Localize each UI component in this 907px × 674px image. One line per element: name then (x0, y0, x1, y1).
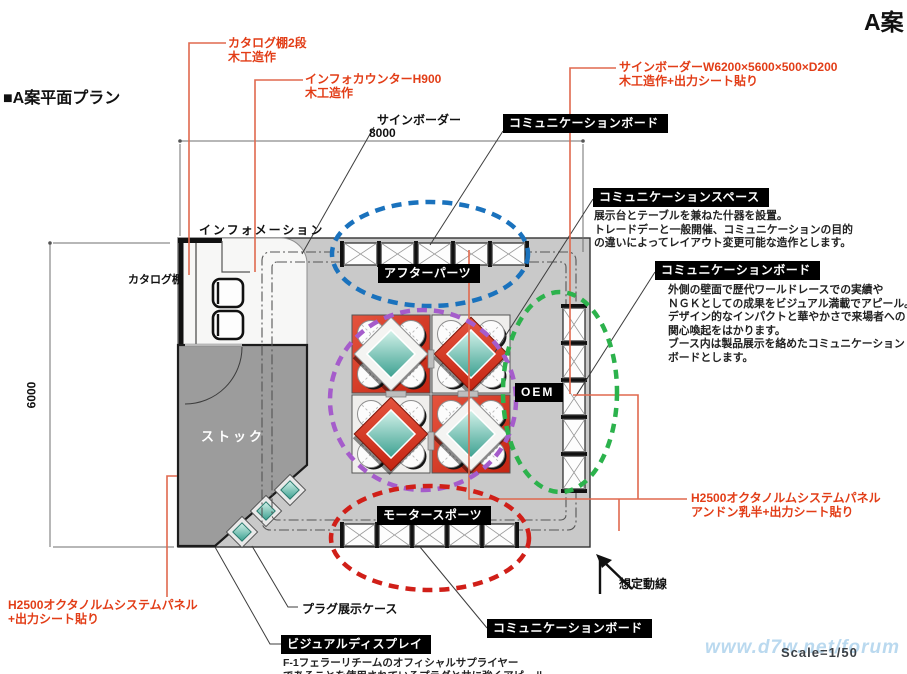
annotation-info-counter: インフォカウンターH900 木工造作 (305, 72, 441, 100)
desc-line: 展示台とテーブルを兼ねた什器を設置。 (594, 210, 853, 224)
comm-space-label: コミュニケーションスペース (593, 188, 769, 207)
desc-line: ブース内は製品展示を絡めたコミュニケーション (668, 338, 907, 352)
desc-line: 関心喚起をはかります。 (668, 325, 907, 339)
desc-line: 外側の壁面で歴代ワールドレースでの実績や (668, 284, 907, 298)
stock-label: ストック (201, 426, 265, 445)
page-title: A案 (864, 3, 904, 37)
comm-board-right-desc: 外側の壁面で歴代ワールドレースでの実績や ＮＧＫとしての成果をビジュアル満載でア… (668, 284, 907, 365)
annotation-octanorm-right: H2500オクタノルムシステムパネル アンドン乳半+出力シート貼り (691, 491, 881, 519)
annotation-line: インフォカウンターH900 (305, 72, 441, 86)
comm-board-bottom-label: コミュニケーションボード (487, 619, 652, 638)
desc-line: F-1フェラーリチームのオフィシャルサプライヤー (283, 657, 556, 670)
comm-board-right-label: コミュニケーションボード (655, 261, 820, 280)
annotation-sign-border: サインボーダーW6200×5600×500×D200 木工造作+出力シート貼り (619, 60, 837, 88)
desc-line: ボードとします。 (668, 352, 907, 366)
motor-sports-label: モータースポーツ (377, 506, 491, 525)
annotation-line: 木工造作+出力シート貼り (619, 74, 837, 88)
annotation-line: H2500オクタノルムシステムパネル (8, 598, 198, 612)
annotation-line: アンドン乳半+出力シート貼り (691, 505, 881, 519)
visual-display-label: ビジュアルディスプレイ (281, 635, 431, 654)
plug-case-label: プラグ展示ケース (302, 600, 397, 617)
information-label: インフォメーション (199, 221, 324, 238)
right-wall-panels (561, 304, 587, 493)
catalog-shelf-label: カタログ棚 (128, 271, 183, 287)
desc-line: デザイン的なインパクトと華やかさで来場者への (668, 311, 907, 325)
after-parts-label: アフターパーツ (378, 264, 480, 283)
annotation-line: 木工造作 (228, 50, 307, 64)
desc-line: ＮＧＫとしての成果をビジュアル満載でアピール。 (668, 298, 907, 312)
chair (213, 311, 243, 339)
annotation-line: +出力シート貼り (8, 612, 198, 626)
width-dimension-label: 8000 (369, 126, 396, 140)
depth-dimension-label: 6000 (24, 382, 38, 409)
annotation-octanorm-left: H2500オクタノルムシステムパネル +出力シート貼り (8, 598, 198, 626)
desc-line: の違いによってレイアウト変更可能な造作とします。 (594, 237, 853, 251)
annotation-line: H2500オクタノルムシステムパネル (691, 491, 881, 505)
floor-plan-page: A案 ■A案平面プラン カタログ棚2段 木工造作 インフォカウンターH900 木… (0, 0, 907, 674)
annotation-catalog-shelf: カタログ棚2段 木工造作 (228, 36, 307, 64)
oem-label: OEM (515, 383, 563, 402)
desc-line: であることを使用されているプラグと共に強くアピール。 (283, 670, 556, 674)
annotation-line: カタログ棚2段 (228, 36, 307, 50)
visual-display-desc: F-1フェラーリチームのオフィシャルサプライヤー であることを使用されているプラ… (283, 657, 556, 674)
information-counter-area (178, 238, 307, 345)
flow-line-label: 想定動線 (619, 575, 667, 592)
annotation-line: サインボーダーW6200×5600×500×D200 (619, 60, 837, 74)
chair (213, 279, 243, 307)
desc-line: トレードデーと一般開催、コミュニケーションの目的 (594, 224, 853, 238)
scale-label: Scale=1/50 (781, 645, 858, 660)
bottom-wall-panels (340, 522, 519, 548)
section-title: ■A案平面プラン (3, 84, 120, 108)
comm-board-top-label: コミュニケーションボード (503, 114, 668, 133)
comm-space-desc: 展示台とテーブルを兼ねた什器を設置。 トレードデーと一般開催、コミュニケーション… (594, 210, 853, 251)
annotation-line: 木工造作 (305, 86, 441, 100)
